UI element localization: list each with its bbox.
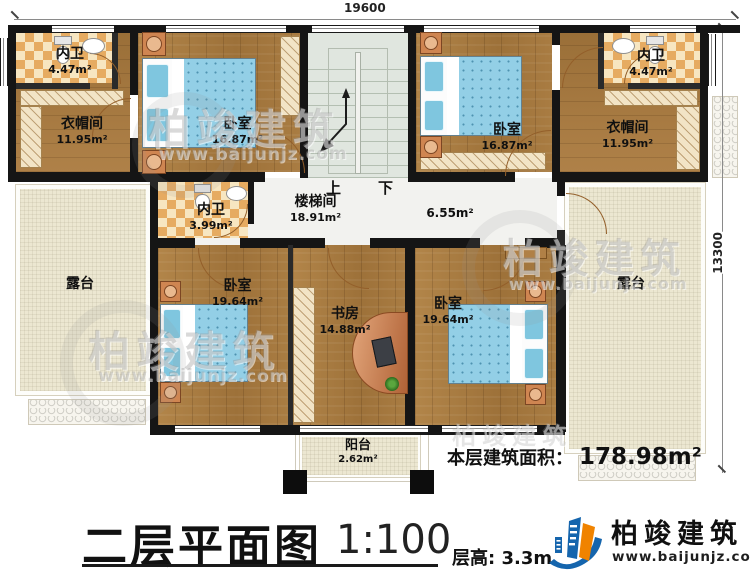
wall (240, 238, 325, 248)
room-label-bath-top-right: 内卫 4.47m² (618, 48, 684, 78)
column (283, 470, 307, 494)
stairs-up-label: 上 (326, 177, 341, 198)
company-website: www.baijunjz.com (612, 549, 750, 565)
floor-area-value: 178.98m² (579, 444, 702, 470)
company-name: 柏竣建筑 (611, 512, 743, 551)
watermark-site: www.baijunjz.com (158, 144, 348, 164)
nightstand (525, 384, 546, 405)
room-name: 阳台 (318, 438, 398, 454)
room-name: 内卫 (40, 46, 100, 63)
closet-shelving (604, 90, 698, 106)
closet-shelving (676, 106, 700, 170)
window (166, 25, 286, 33)
sink (226, 186, 247, 201)
floor-area-total: 本层建筑面积： 178.98m² (447, 444, 702, 470)
room-label-bedroom-bottom-left: 卧室 19.64m² (200, 278, 275, 308)
window (630, 25, 696, 33)
wall (288, 245, 293, 432)
room-area: 11.95m² (42, 133, 122, 146)
wall (16, 83, 90, 89)
watermark-site: www.baijunjz.com (508, 274, 687, 293)
dimension-right-value: 13300 (708, 232, 728, 274)
room-name: 衣帽间 (42, 116, 122, 133)
room-area: 19.64m² (200, 295, 275, 308)
wall (408, 25, 416, 178)
nightstand (420, 32, 442, 54)
room-label-terrace-left: 露台 (45, 276, 115, 293)
dimension-top-value: 19600 (341, 1, 389, 15)
dimension-line-top (14, 19, 736, 20)
floor-plan: 19600 13300 (0, 0, 750, 580)
wall (8, 25, 16, 182)
room-label-wardrobe-right: 衣帽间 11.95m² (585, 120, 670, 150)
wall (700, 25, 708, 182)
hall-area-label: 6.55m² (405, 206, 495, 220)
column (410, 470, 434, 494)
nightstand (160, 281, 181, 302)
room-name: 卧室 (467, 122, 547, 139)
window (175, 425, 260, 435)
room-label-balcony: 阳台 2.62m² (318, 438, 398, 466)
room-label-bedroom-top-right: 卧室 16.87m² (467, 122, 547, 152)
balcony-door-window (300, 425, 428, 435)
wall (552, 25, 560, 45)
room-area: 16.87m² (467, 139, 547, 152)
room-area: 14.88m² (310, 323, 380, 336)
room-name: 内卫 (176, 202, 246, 219)
wall (557, 178, 565, 196)
wall (552, 90, 560, 182)
plan-scale: 1:100 (336, 517, 451, 563)
room-area: 11.95m² (585, 137, 670, 150)
nightstand (420, 136, 442, 158)
dimension-tick (11, 11, 19, 19)
room-area: 2.62m² (318, 454, 398, 466)
floor-area-label: 本层建筑面积： (447, 444, 573, 470)
eave-band (712, 96, 738, 178)
wall (248, 182, 254, 224)
window (708, 34, 716, 86)
watermark-site: www.baijunjz.com (98, 366, 288, 386)
room-label-study: 书房 14.88m² (310, 306, 380, 336)
window (0, 38, 8, 86)
nightstand (142, 32, 166, 56)
dimension-tick (731, 11, 739, 19)
title-underline (82, 564, 438, 567)
room-label-bath-top-left: 内卫 4.47m² (40, 46, 100, 76)
wall (370, 238, 480, 248)
room-area: 4.47m² (618, 65, 684, 78)
room-label-stair-hall: 楼梯间 18.91m² (268, 194, 363, 224)
wall (130, 25, 138, 95)
window (312, 25, 404, 33)
room-label-bath-middle: 内卫 3.99m² (176, 202, 246, 232)
wall (408, 172, 515, 182)
room-area: 4.47m² (40, 63, 100, 76)
wall (552, 172, 708, 182)
room-area: 18.91m² (268, 211, 363, 224)
room-name: 衣帽间 (585, 120, 670, 137)
room-name: 书房 (310, 306, 380, 323)
window (52, 25, 114, 33)
plant (385, 377, 399, 391)
room-name: 露台 (45, 276, 115, 293)
room-area: 6.55m² (405, 206, 495, 220)
room-area: 3.99m² (176, 219, 246, 232)
stairs-down-label: 下 (378, 177, 393, 198)
closet-shelving (20, 106, 42, 168)
floor-height-label: 层高: 3.3m (452, 544, 552, 570)
room-area: 19.64m² (408, 313, 488, 326)
room-label-wardrobe-left: 衣帽间 11.95m² (42, 116, 122, 146)
company-logo-icon (543, 511, 607, 575)
room-name: 卧室 (200, 278, 275, 295)
room-name: 内卫 (618, 48, 684, 65)
room-name: 楼梯间 (268, 194, 363, 211)
